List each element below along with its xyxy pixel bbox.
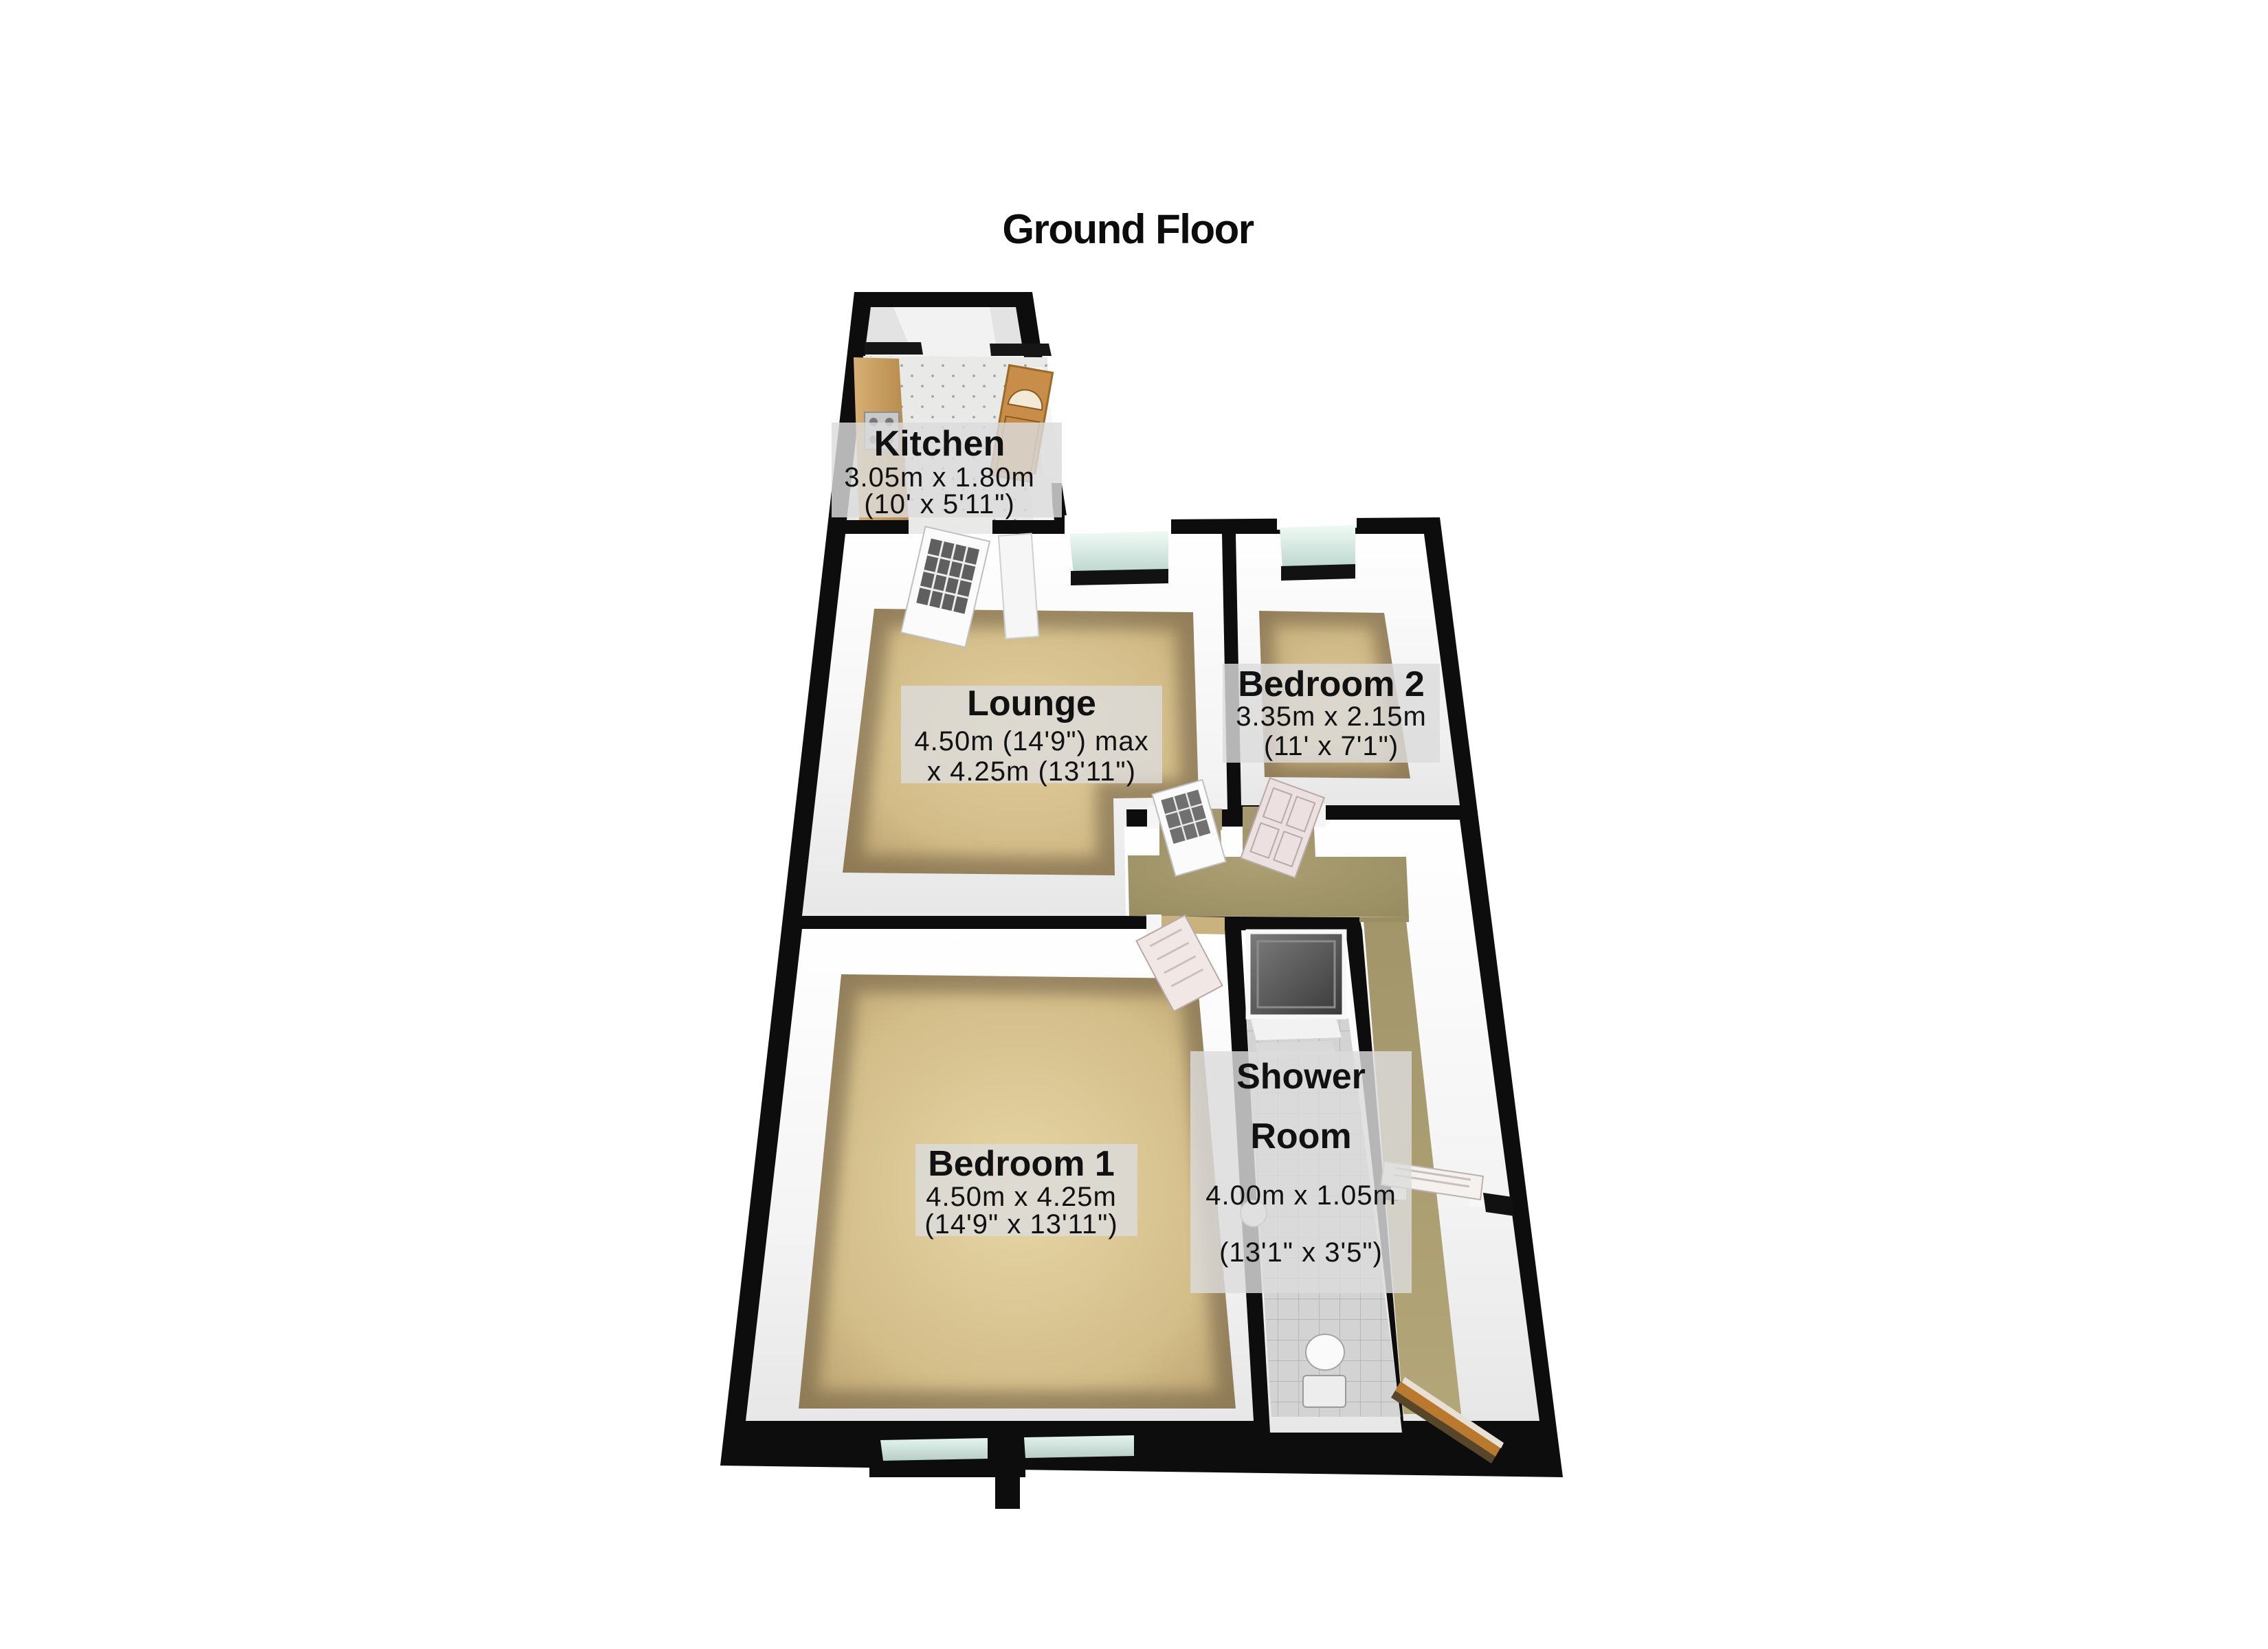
svg-text:Room: Room [1250,1117,1351,1156]
svg-text:(14'9" x 13'11"): (14'9" x 13'11") [924,1209,1118,1239]
svg-text:4.00m x 1.05m: 4.00m x 1.05m [1205,1180,1397,1211]
svg-text:Kitchen: Kitchen [874,424,1005,464]
svg-text:Bedroom 1: Bedroom 1 [928,1144,1115,1184]
svg-text:4.50m (14'9") max: 4.50m (14'9") max [914,726,1148,756]
svg-text:Bedroom 2: Bedroom 2 [1238,664,1425,704]
svg-text:Ground Floor: Ground Floor [1002,206,1254,252]
svg-text:Lounge: Lounge [967,684,1096,723]
svg-text:(10' x 5'11"): (10' x 5'11") [864,489,1015,519]
svg-text:(13'1" x 3'5"): (13'1" x 3'5") [1219,1237,1383,1268]
svg-text:x 4.25m (13'11"): x 4.25m (13'11") [927,756,1136,787]
svg-text:(11' x 7'1"): (11' x 7'1") [1264,731,1399,761]
svg-text:Shower: Shower [1236,1057,1366,1097]
svg-text:3.35m x 2.15m: 3.35m x 2.15m [1236,702,1427,732]
svg-text:4.50m x 4.25m: 4.50m x 4.25m [926,1182,1117,1212]
svg-text:3.05m x 1.80m: 3.05m x 1.80m [844,462,1035,493]
